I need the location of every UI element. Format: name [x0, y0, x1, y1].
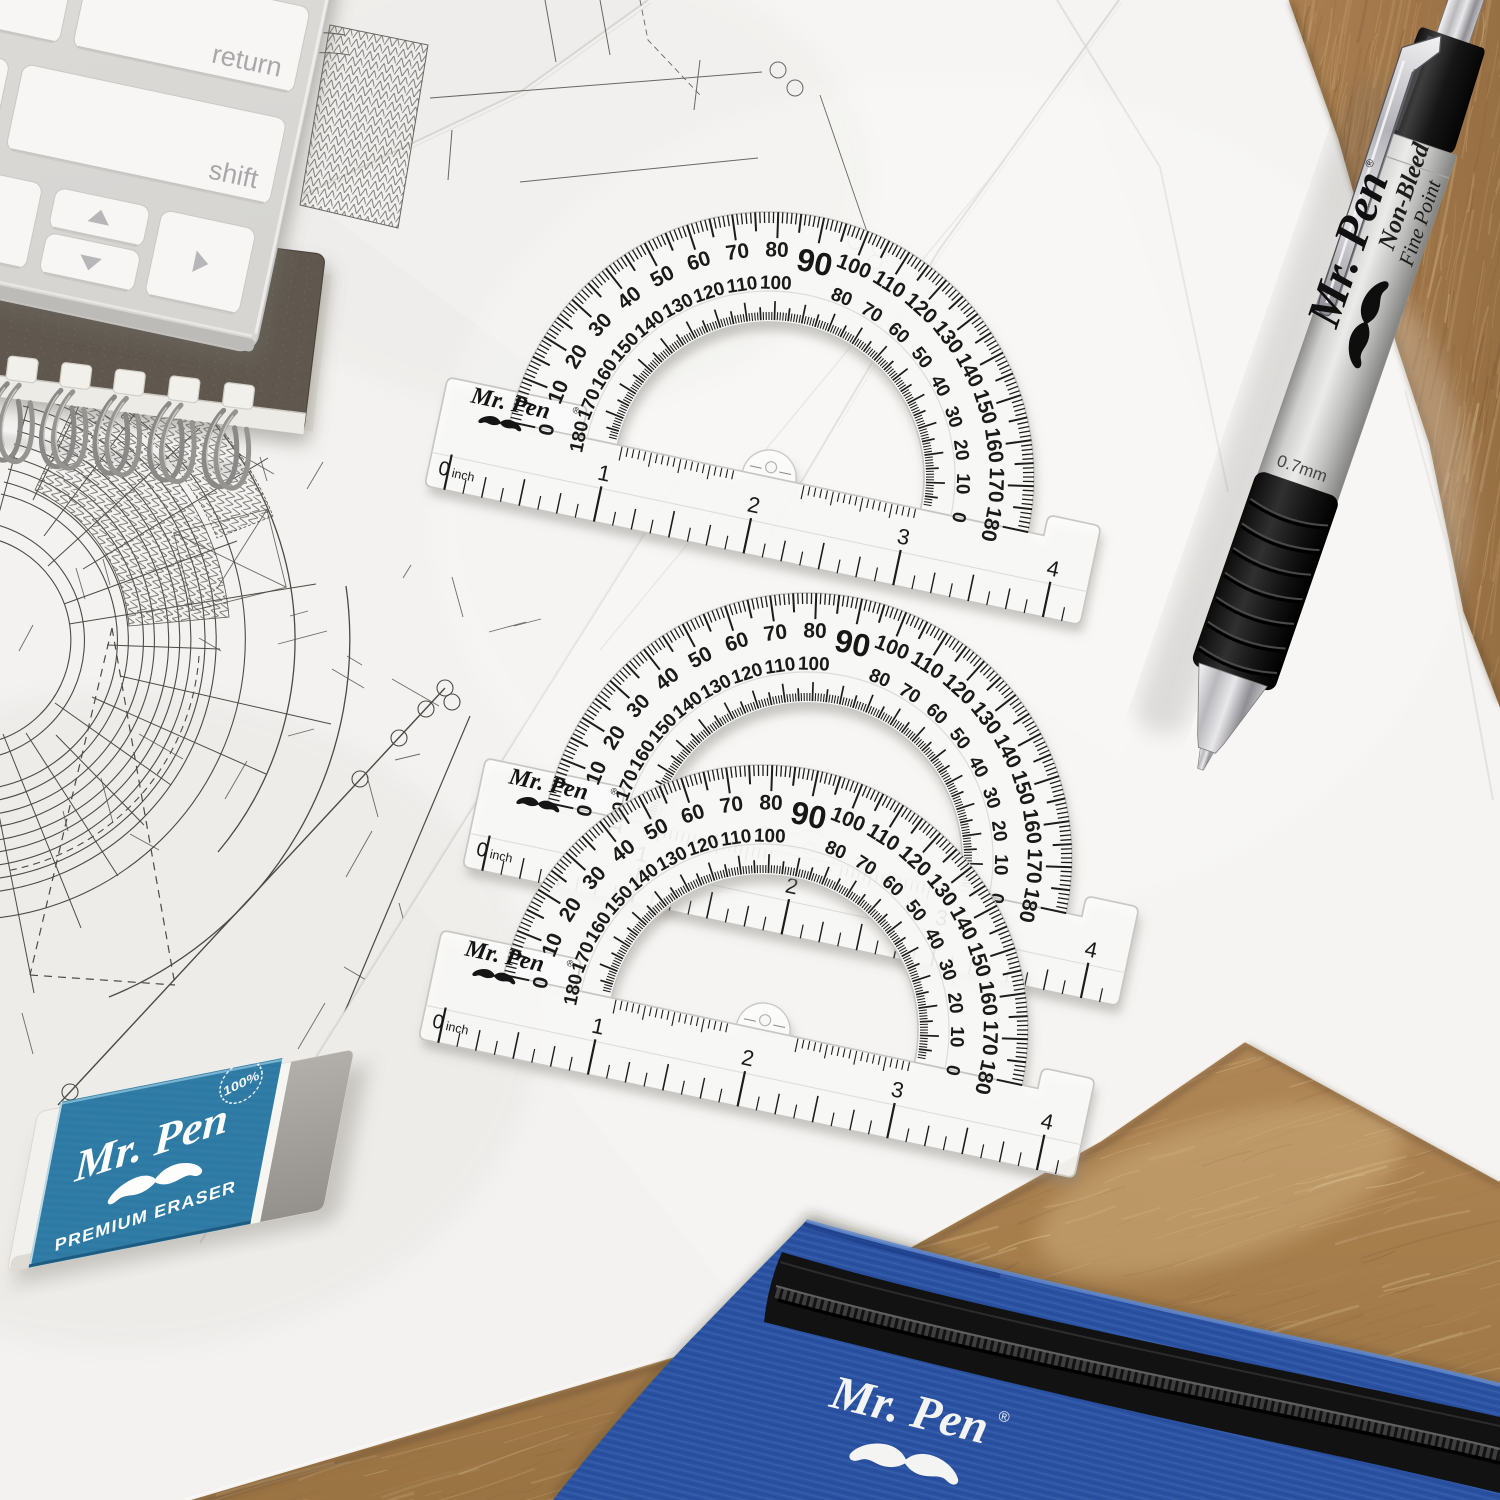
svg-text:160: 160	[974, 979, 1002, 1017]
svg-text:110: 110	[763, 654, 796, 679]
svg-text:10: 10	[946, 1026, 968, 1048]
svg-text:70: 70	[724, 239, 750, 265]
svg-text:70: 70	[718, 792, 744, 818]
svg-text:110: 110	[719, 826, 752, 851]
svg-text:100: 100	[754, 826, 786, 848]
svg-text:10: 10	[952, 473, 974, 495]
svg-text:160: 160	[1018, 807, 1046, 845]
svg-text:170: 170	[978, 1020, 1002, 1056]
svg-text:90: 90	[787, 794, 829, 837]
svg-text:170: 170	[1022, 848, 1046, 884]
svg-text:170: 170	[984, 467, 1008, 503]
svg-text:80: 80	[765, 238, 789, 262]
svg-text:110: 110	[725, 273, 758, 298]
svg-text:20: 20	[949, 438, 973, 462]
svg-text:90: 90	[793, 241, 835, 284]
svg-text:80: 80	[803, 619, 827, 643]
svg-text:100: 100	[760, 273, 792, 295]
svg-text:160: 160	[980, 426, 1008, 464]
svg-text:20: 20	[987, 819, 1011, 843]
svg-text:90: 90	[831, 622, 873, 665]
svg-text:20: 20	[943, 991, 967, 1015]
svg-text:100: 100	[798, 654, 830, 676]
svg-text:80: 80	[759, 791, 783, 815]
svg-text:10: 10	[990, 854, 1012, 876]
svg-text:70: 70	[762, 620, 788, 646]
